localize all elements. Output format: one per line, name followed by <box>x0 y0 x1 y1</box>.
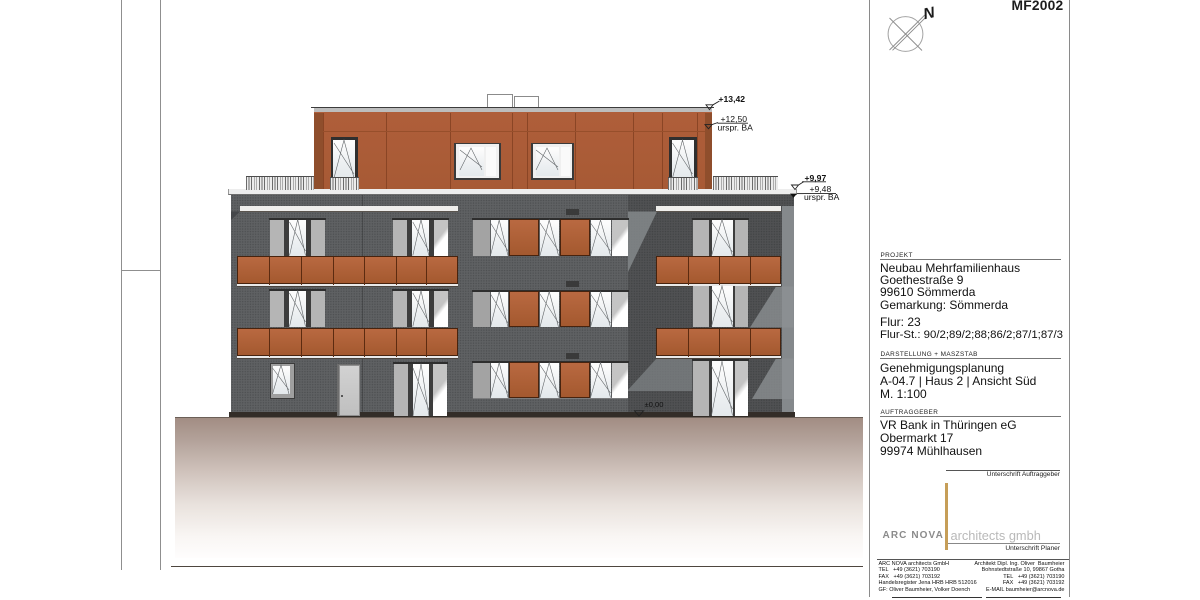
svg-text:urspr. BA: urspr. BA <box>718 123 754 133</box>
svg-text:N: N <box>922 4 937 23</box>
svg-text:±0,00: ±0,00 <box>645 400 664 409</box>
svg-text:+9,97: +9,97 <box>805 173 827 183</box>
svg-text:+13,42: +13,42 <box>719 94 746 104</box>
svg-text:urspr. BA: urspr. BA <box>804 192 840 202</box>
